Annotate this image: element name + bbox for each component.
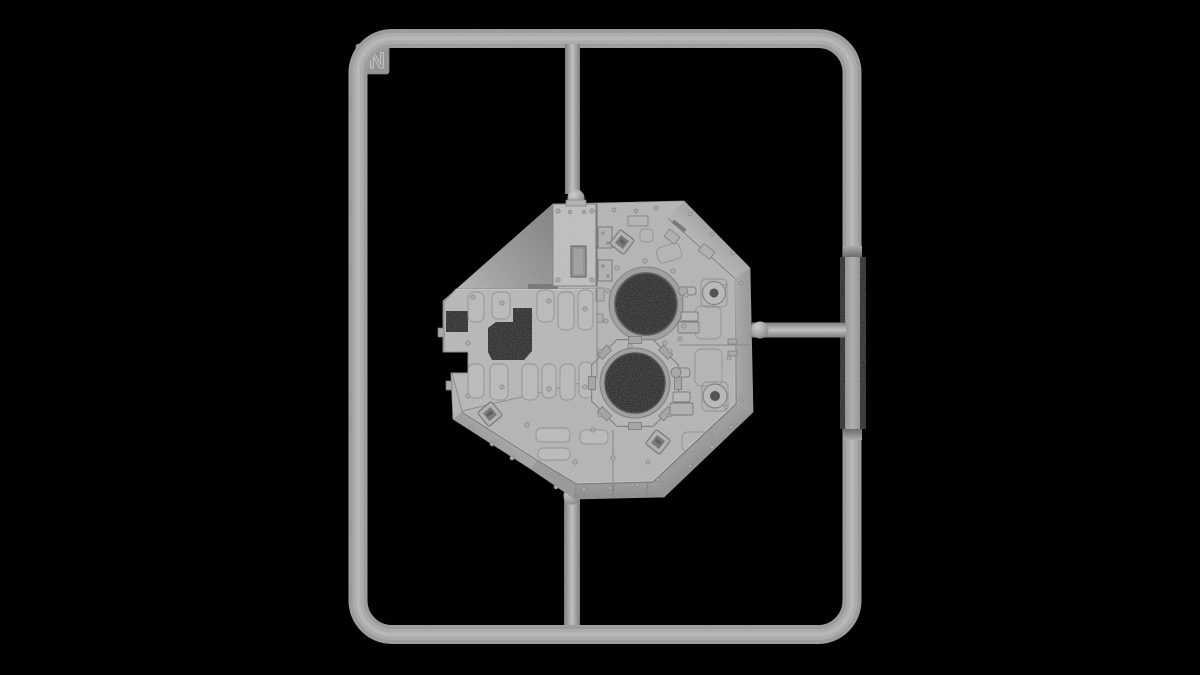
lower-hatch <box>589 337 682 430</box>
turret-roof-part <box>438 200 753 499</box>
runner-top <box>565 44 580 194</box>
render-stage: N <box>0 0 1200 675</box>
upper-hatch-opening <box>616 274 677 335</box>
runner-bottom <box>564 498 580 625</box>
stowage-box <box>553 200 597 286</box>
frame-right-web <box>840 246 866 440</box>
sprue-render: N <box>0 0 1200 675</box>
gate-ball-right <box>752 322 769 339</box>
lower-hatch-opening <box>605 353 665 413</box>
upper-hatch <box>609 267 683 341</box>
